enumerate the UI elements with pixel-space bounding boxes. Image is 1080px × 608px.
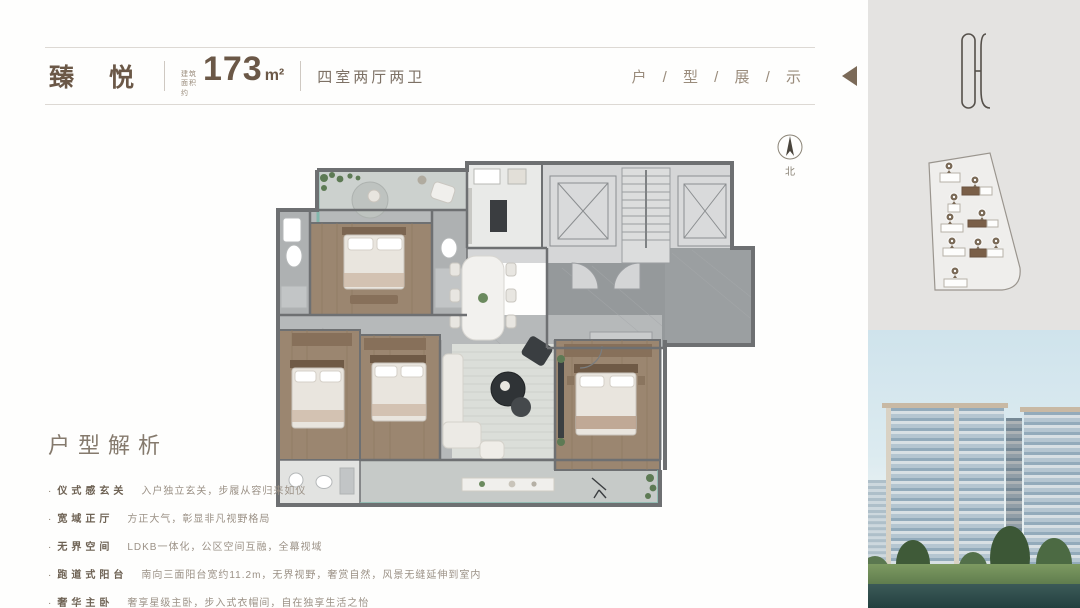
analysis-item-desc: 奢享星级主卧，步入式衣帽间，自在独享生活之怡: [127, 594, 369, 608]
elevator-2: [678, 176, 732, 246]
grass: [868, 564, 1080, 586]
tower-1-roof: [882, 403, 1008, 408]
compass: 北: [772, 132, 808, 178]
north-arrow-icon: [775, 132, 805, 162]
headboard: [370, 355, 426, 363]
highlighted-building: [962, 187, 980, 195]
bedroom-upper: [310, 223, 432, 315]
wardrobe: [564, 344, 652, 357]
analysis-item-label: 无界空间: [57, 538, 113, 553]
kitchen: [467, 163, 542, 248]
area-group: 建筑面积约 173 m²: [181, 50, 284, 101]
analysis-title: 户型解析: [48, 428, 528, 460]
fridge: [490, 200, 507, 232]
bed-bench: [350, 295, 398, 304]
analysis-item-label: 仪式感玄关: [57, 482, 127, 497]
elevator-1: [550, 176, 616, 246]
analysis-item-desc: LDKB一体化，公区空间互融，全幕视域: [127, 538, 322, 553]
section-title: 户 / 型 / 展 / 示: [631, 66, 807, 87]
area-label: 建筑面积约: [181, 70, 203, 97]
staircase: [622, 168, 670, 263]
header-divider: [164, 61, 165, 91]
bullet: ·: [48, 598, 51, 608]
tower-1-edge: [886, 408, 891, 586]
analysis-item: · 仪式感玄关 入户独立玄关，步履从容归来如仪: [48, 482, 528, 497]
analysis-item: · 无界空间 LDKB一体化，公区空间互融，全幕视域: [48, 538, 528, 553]
north-label: 北: [772, 163, 808, 178]
analysis-item-label: 跑道式阳台: [57, 566, 127, 581]
wardrobe: [364, 338, 426, 350]
building-render-photo: [868, 330, 1080, 608]
water: [868, 584, 1080, 608]
analysis-item: · 宽域正厅 方正大气，彰显非凡视野格局: [48, 510, 528, 525]
analysis-item-desc: 入户独立玄关，步履从容归来如仪: [141, 482, 306, 497]
analysis-item: · 奢华主卧 奢享星级主卧，步入式衣帽间，自在独享生活之怡: [48, 594, 528, 608]
page: 臻 悦 建筑面积约 173 m² 四室两厅两卫 户 / 型 / 展 / 示 北: [0, 0, 1080, 608]
tower-2-roof: [1020, 407, 1080, 412]
brand-name: 臻 悦: [49, 58, 148, 94]
bullet: ·: [48, 570, 51, 581]
bullet: ·: [48, 486, 51, 497]
highlighted-building: [970, 249, 987, 257]
bathroom-upper-left: [278, 210, 310, 315]
bedroom-master: [555, 340, 660, 470]
logo-icon: [946, 28, 1002, 116]
headboard: [290, 360, 344, 368]
centerpiece: [478, 293, 488, 303]
bullet: ·: [48, 514, 51, 525]
tower-1-edge: [954, 408, 959, 586]
prev-slide-arrow-icon[interactable]: [842, 66, 857, 86]
header: 臻 悦 建筑面积约 173 m² 四室两厅两卫 户 / 型 / 展 / 示: [45, 47, 815, 105]
headboard: [574, 364, 638, 373]
layout-spec: 四室两厅两卫: [317, 66, 425, 87]
analysis-item-desc: 南向三面阳台宽约11.2m，无界视野，奢赏自然，风景无缝延伸到室内: [141, 566, 481, 581]
analysis-item: · 跑道式阳台 南向三面阳台宽约11.2m，无界视野，奢赏自然，风景无缝延伸到室…: [48, 566, 528, 581]
stove: [508, 169, 526, 184]
header-divider: [300, 61, 301, 91]
site-plan: [868, 138, 1080, 313]
highlighted-building: [968, 220, 987, 227]
analysis-item-desc: 方正大气，彰显非凡视野格局: [127, 510, 270, 525]
analysis-item-label: 宽域正厅: [57, 510, 113, 525]
headboard: [342, 227, 406, 235]
analysis-list: · 仪式感玄关 入户独立玄关，步履从容归来如仪 · 宽域正厅 方正大气，彰显非凡…: [48, 482, 528, 608]
analysis-section: 户型解析 · 仪式感玄关 入户独立玄关，步履从容归来如仪 · 宽域正厅 方正大气…: [48, 428, 528, 608]
analysis-item-label: 奢华主卧: [57, 594, 113, 608]
right-panel: [868, 0, 1080, 608]
right-wing-floor: [665, 248, 753, 345]
tv-wall: [558, 362, 564, 438]
bullet: ·: [48, 542, 51, 553]
area-unit: m²: [265, 67, 285, 85]
side-table: [511, 397, 531, 417]
side-table: [418, 176, 427, 185]
area-value: 173: [203, 50, 263, 89]
wardrobe: [292, 333, 352, 346]
kitchen-sink: [474, 169, 500, 184]
